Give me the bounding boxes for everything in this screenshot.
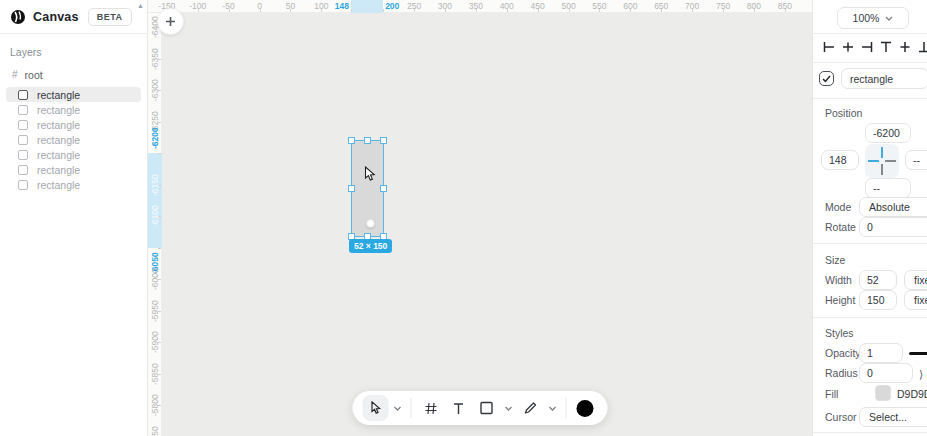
fill-color-swatch[interactable] xyxy=(875,385,891,401)
anchor-right-segment xyxy=(885,160,896,162)
rectangle-layer-icon xyxy=(18,90,28,100)
ruler-label: 300 xyxy=(438,1,452,11)
visibility-checkbox[interactable] xyxy=(819,71,834,86)
plus-icon xyxy=(165,16,176,27)
layer-name-input[interactable] xyxy=(841,68,927,89)
width-input[interactable] xyxy=(859,270,897,290)
rectangle-layer-icon xyxy=(18,135,28,145)
width-mode-value: fixed xyxy=(914,274,927,286)
ruler-label: 100 xyxy=(314,1,328,11)
ruler-label: -5950 xyxy=(148,298,161,324)
panel-divider xyxy=(813,62,927,63)
align-right-icon xyxy=(860,40,874,54)
ruler-label: 850 xyxy=(778,1,792,11)
height-label: Height xyxy=(825,294,855,306)
anchor-left-segment xyxy=(868,160,879,162)
constraint-anchor-widget[interactable] xyxy=(865,144,899,178)
horizontal-ruler: -150-100-5005010014820025030035040045050… xyxy=(148,0,812,13)
ruler-label: 700 xyxy=(685,1,699,11)
mouse-pointer-icon xyxy=(364,166,376,182)
align-center-vertical-button[interactable] xyxy=(897,38,912,56)
align-bottom-icon xyxy=(917,40,927,54)
align-bottom-button[interactable] xyxy=(916,38,927,56)
mode-value: Absolute xyxy=(869,201,910,213)
zoom-level-value: 100% xyxy=(853,12,880,24)
ruler-selection-band xyxy=(351,0,383,13)
ruler-label: -6100 xyxy=(148,203,161,229)
align-right-button[interactable] xyxy=(859,38,874,56)
layers-section-title: Layers xyxy=(0,34,147,62)
ruler-label: 250 xyxy=(407,1,421,11)
root-label: root xyxy=(25,69,43,81)
layer-item-label: rectangle xyxy=(37,119,80,131)
ruler-label: 550 xyxy=(592,1,606,11)
position-right-input[interactable] xyxy=(905,150,927,170)
align-top-icon xyxy=(879,40,893,54)
ruler-label: 148 xyxy=(335,1,349,11)
canvas-logo-icon xyxy=(10,9,26,25)
radius-expand-icon[interactable]: ⟩ xyxy=(919,368,923,381)
position-x-input[interactable] xyxy=(821,150,859,170)
width-label: Width xyxy=(825,274,852,286)
layer-item-rectangle-5[interactable]: rectangle xyxy=(6,162,141,177)
layer-root-item[interactable]: # root xyxy=(0,66,147,83)
layer-item-rectangle-1[interactable]: rectangle xyxy=(6,102,141,117)
size-section-title: Size xyxy=(825,254,845,266)
zoom-level-dropdown[interactable]: 100% xyxy=(837,7,909,29)
cursor-tool-button[interactable] xyxy=(363,395,389,421)
opacity-label: Opacity xyxy=(825,347,861,359)
layer-item-label: rectangle xyxy=(37,149,80,161)
ruler-label: 0 xyxy=(257,1,262,11)
canvas-area[interactable]: -150-100-5005010014820025030035040045050… xyxy=(148,0,812,436)
text-icon xyxy=(453,402,465,415)
layer-item-label: rectangle xyxy=(37,89,80,101)
layer-item-rectangle-6[interactable]: rectangle xyxy=(6,177,141,192)
opacity-input[interactable] xyxy=(859,343,903,363)
ruler-tick xyxy=(383,9,384,12)
ruler-tick xyxy=(351,9,352,12)
pen-tool-menu-chevron[interactable] xyxy=(546,395,560,421)
anchor-bottom-segment xyxy=(881,164,883,175)
ruler-label: -5750 xyxy=(148,424,161,436)
cursor-label: Cursor xyxy=(825,411,857,423)
align-center-horizontal-button[interactable] xyxy=(840,38,855,56)
rectangle-tool-button[interactable] xyxy=(474,395,500,421)
rectangle-layer-icon xyxy=(18,150,28,160)
ruler-label: -6150 xyxy=(148,172,161,198)
ruler-label: -6200 xyxy=(148,125,161,151)
resize-handle-e[interactable] xyxy=(380,185,387,192)
resize-handle-n[interactable] xyxy=(364,137,371,144)
scrollbar-up-arrow[interactable]: ▲ xyxy=(137,2,144,9)
styles-section-title: Styles xyxy=(825,327,854,339)
layer-item-label: rectangle xyxy=(37,164,80,176)
ruler-label: 50 xyxy=(286,1,295,11)
ruler-label: 600 xyxy=(623,1,637,11)
position-y-input[interactable] xyxy=(865,123,911,143)
opacity-slider[interactable] xyxy=(909,352,927,355)
vertical-ruler: -6400-6350-6300-6250-6200-6150-6100-6050… xyxy=(148,13,162,436)
rectangle-icon xyxy=(480,401,494,415)
color-swatch-button[interactable] xyxy=(577,400,594,417)
pen-icon xyxy=(524,401,538,415)
radius-label: Radius xyxy=(825,367,858,379)
rectangle-layer-icon xyxy=(18,180,28,190)
ruler-label: -6300 xyxy=(148,77,161,103)
grid-tool-button[interactable] xyxy=(418,395,444,421)
toolbar-divider xyxy=(411,398,412,418)
app-window: Canvas BETA ▲ Layers # root rectanglerec… xyxy=(0,0,927,436)
anchor-top-segment xyxy=(881,147,883,158)
radius-input[interactable] xyxy=(859,363,913,383)
layer-item-label: rectangle xyxy=(37,134,80,146)
height-mode-value: fixed xyxy=(914,294,927,306)
chevron-down-icon xyxy=(549,406,557,411)
layers-list: rectanglerectanglerectanglerectanglerect… xyxy=(0,87,147,192)
ruler-label: -5900 xyxy=(148,329,161,355)
cursor-icon xyxy=(370,401,382,415)
cursor-select-value: Select... xyxy=(869,411,907,423)
ruler-label: -50 xyxy=(222,1,234,11)
resize-handle-ne[interactable] xyxy=(380,137,387,144)
ruler-label: 350 xyxy=(469,1,483,11)
alignment-toolbar xyxy=(821,38,927,56)
ruler-label: -5800 xyxy=(148,392,161,418)
ruler-label: -6000 xyxy=(148,266,161,292)
resize-handle-nw[interactable] xyxy=(348,137,355,144)
selection-size-badge: 52 × 150 xyxy=(349,239,392,253)
position-bottom-input[interactable] xyxy=(865,178,911,198)
chevron-down-icon xyxy=(394,406,402,411)
ruler-label: 400 xyxy=(500,1,514,11)
layer-name-row xyxy=(819,68,927,89)
toolbar-divider xyxy=(566,398,567,418)
corner-radius-handle[interactable] xyxy=(366,219,375,228)
properties-panel: 100% xyxy=(812,0,927,436)
panel-divider xyxy=(813,432,927,433)
align-left-icon xyxy=(822,40,836,54)
ruler-label: 200 xyxy=(385,1,399,11)
align-top-button[interactable] xyxy=(878,38,893,56)
panel-divider xyxy=(813,243,927,244)
cursor-tool-menu-chevron[interactable] xyxy=(391,395,405,421)
rectangle-layer-icon xyxy=(18,165,28,175)
layers-sidebar: Canvas BETA ▲ Layers # root rectanglerec… xyxy=(0,0,148,436)
align-center-vertical-icon xyxy=(898,40,912,54)
rotate-input[interactable] xyxy=(859,217,927,237)
grid-icon xyxy=(424,402,437,415)
text-tool-button[interactable] xyxy=(446,395,472,421)
chevron-down-icon xyxy=(885,16,893,21)
rectangle-layer-icon xyxy=(18,105,28,115)
width-mode-select[interactable]: fixed xyxy=(904,270,927,290)
mode-select[interactable]: Absolute xyxy=(859,197,927,217)
fill-hex-value: D9D9D9 xyxy=(897,388,927,400)
ruler-selection-band xyxy=(148,153,162,248)
ruler-label: 650 xyxy=(654,1,668,11)
layer-item-rectangle-4[interactable]: rectangle xyxy=(6,147,141,162)
align-left-button[interactable] xyxy=(821,38,836,56)
beta-badge: BETA xyxy=(88,8,132,26)
mode-label: Mode xyxy=(825,201,851,213)
position-section-title: Position xyxy=(825,107,862,119)
ruler-tick xyxy=(158,248,161,249)
rotate-label: Rotate xyxy=(825,221,856,233)
ruler-label: 450 xyxy=(531,1,545,11)
resize-handle-w[interactable] xyxy=(348,185,355,192)
sidebar-header: Canvas BETA ▲ xyxy=(0,0,147,34)
hash-icon: # xyxy=(12,69,18,80)
pen-tool-button[interactable] xyxy=(518,395,544,421)
height-input[interactable] xyxy=(859,290,897,310)
app-title: Canvas xyxy=(33,10,79,24)
add-button[interactable] xyxy=(157,8,184,35)
height-mode-select[interactable]: fixed xyxy=(904,290,927,310)
shape-tool-menu-chevron[interactable] xyxy=(502,395,516,421)
align-center-horizontal-icon xyxy=(841,40,855,54)
fill-label: Fill xyxy=(825,388,838,400)
cursor-select[interactable]: Select... xyxy=(859,407,927,427)
ruler-label: 800 xyxy=(747,1,761,11)
panel-divider xyxy=(813,33,927,34)
ruler-label: -5850 xyxy=(148,361,161,387)
layer-item-rectangle-3[interactable]: rectangle xyxy=(6,132,141,147)
panel-divider xyxy=(813,317,927,318)
canvas-toolbar xyxy=(353,391,608,425)
layer-item-rectangle-2[interactable]: rectangle xyxy=(6,117,141,132)
ruler-label: 750 xyxy=(716,1,730,11)
layer-item-label: rectangle xyxy=(37,179,80,191)
panel-divider xyxy=(813,98,927,99)
rectangle-layer-icon xyxy=(18,120,28,130)
ruler-label: -6350 xyxy=(148,46,161,72)
ruler-label: 500 xyxy=(561,1,575,11)
layer-item-label: rectangle xyxy=(37,104,80,116)
ruler-label: -100 xyxy=(189,1,206,11)
check-icon xyxy=(822,75,831,83)
ruler-tick xyxy=(158,153,161,154)
chevron-down-icon xyxy=(505,406,513,411)
layer-item-rectangle-0[interactable]: rectangle xyxy=(6,87,141,102)
